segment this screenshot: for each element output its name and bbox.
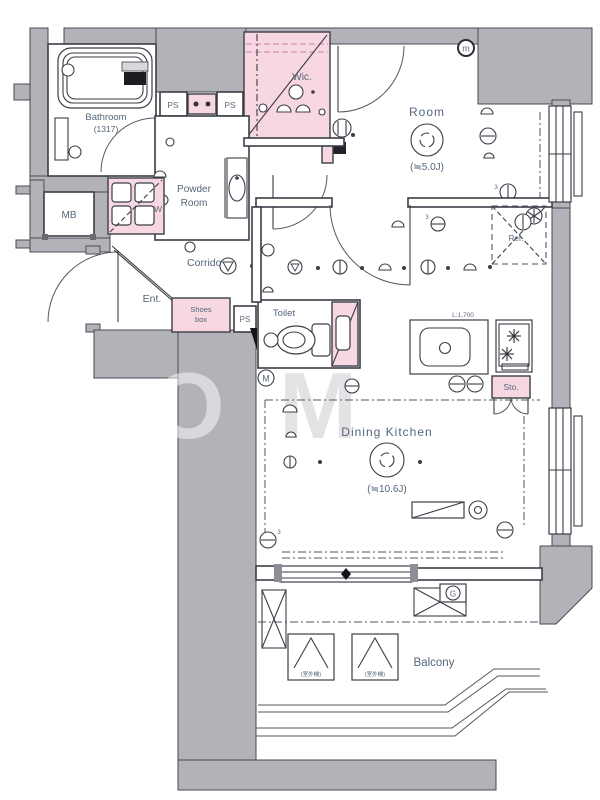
meter-box: MB [42, 192, 96, 240]
water-meter-label: M [262, 374, 270, 384]
outlet-symbol [263, 287, 273, 292]
toilet-room: Toilet [250, 300, 360, 368]
outlet-symbol [262, 244, 274, 256]
counter-length-label: L:1,700 [452, 312, 474, 319]
pipe-spaces: PS PS [160, 92, 243, 116]
sink-drain-icon [440, 343, 451, 354]
water-meter: M [258, 370, 274, 386]
outlet-symbol [515, 214, 531, 230]
ac-unit-label-2: (室外機) [365, 670, 385, 678]
electric-meter-label: m [462, 44, 470, 54]
light-symbol [220, 258, 236, 274]
outlet-symbol [467, 376, 483, 392]
bathtub-icon [58, 48, 152, 108]
outlet-symbol [449, 376, 465, 392]
washer-label: W [154, 204, 162, 214]
room-door-arc [338, 46, 404, 112]
shoes-box-label-2: box [195, 315, 207, 324]
outlet-symbol [288, 260, 302, 274]
dining-kitchen-size-label: (≒10.6J) [367, 484, 407, 495]
outlet-symbol [284, 456, 296, 468]
bathroom-label: Bathroom [85, 112, 126, 123]
storage: Sto. [492, 376, 530, 414]
stove-icon [496, 320, 532, 372]
dining-kitchen-label: Dining Kitchen [341, 425, 432, 439]
outlet-symbol [484, 153, 494, 158]
ac-unit-label-1: (室外機) [301, 670, 321, 678]
washer-space: W [108, 178, 164, 234]
sliding-door-handle-icon [333, 119, 351, 137]
ps-label-3: PS [240, 315, 251, 324]
room-window [549, 106, 582, 202]
ceiling-light-icon [370, 443, 404, 477]
outlet-symbol: 3 [425, 215, 445, 231]
balcony: G (室外機) (室外機) Balcony [256, 584, 548, 736]
watermark-letter-1: O [151, 353, 224, 458]
ps-label-1: PS [167, 100, 179, 110]
svg-text:3: 3 [494, 185, 498, 191]
hatch-box-vertical [262, 590, 286, 648]
svg-text:3: 3 [425, 215, 429, 221]
wic-light-icon [289, 85, 303, 99]
powder-room-label-2: Room [181, 198, 208, 209]
electric-meter: m [458, 40, 474, 56]
toilet-label: Toilet [273, 308, 296, 319]
room-size-label: (≒5.0J) [410, 162, 444, 173]
tv-board [412, 501, 487, 519]
outlet-symbol [481, 108, 493, 114]
shoes-box: Shoes box [172, 298, 230, 332]
mb-label: MB [62, 210, 77, 221]
powder-room-label-1: Powder [177, 184, 212, 195]
walk-in-closet: Wic. [244, 32, 330, 140]
ac-outdoor-unit-1: (室外機) [288, 634, 334, 680]
bathroom-size-label: (1317) [94, 124, 119, 134]
balcony-label: Balcony [414, 657, 455, 669]
entrance: Ent. [48, 246, 174, 322]
outlet-symbol [464, 264, 476, 270]
outlet-symbol [480, 128, 496, 144]
outlet-symbol [421, 260, 435, 274]
floor-plan-drawing: O M Bathroom (1317) PS PS [0, 0, 600, 800]
bath-drain-icon [69, 146, 81, 158]
entrance-door-arc [48, 252, 118, 322]
gas-meter: G [440, 584, 466, 602]
ac-outdoor-unit-2: (室外機) [352, 634, 398, 680]
outlet-symbol [392, 221, 404, 227]
entrance-label: Ent. [143, 293, 162, 305]
svg-text:3: 3 [277, 530, 281, 536]
dk-window [524, 408, 582, 534]
outlet-symbol [497, 522, 513, 538]
room-label: Room [409, 105, 445, 119]
shoes-box-label-1: Shoes [190, 305, 212, 314]
floor-plan: O M Bathroom (1317) PS PS [0, 0, 600, 800]
outlet-symbol [379, 264, 391, 270]
outlet-symbol: 3 [260, 530, 281, 548]
bathroom: Bathroom (1317) [48, 44, 156, 176]
ps-label-2: PS [224, 100, 236, 110]
storage-label: Sto. [503, 382, 518, 392]
wic-label: Wic. [292, 72, 311, 83]
outlet-symbol [345, 379, 359, 393]
outlet-symbol [333, 260, 347, 274]
ceiling-light-icon [411, 124, 443, 156]
ref-label: Ref. [509, 234, 524, 243]
toilet-cabinet [332, 302, 358, 366]
gas-meter-label: G [450, 590, 456, 599]
outlet-symbol [286, 432, 296, 437]
